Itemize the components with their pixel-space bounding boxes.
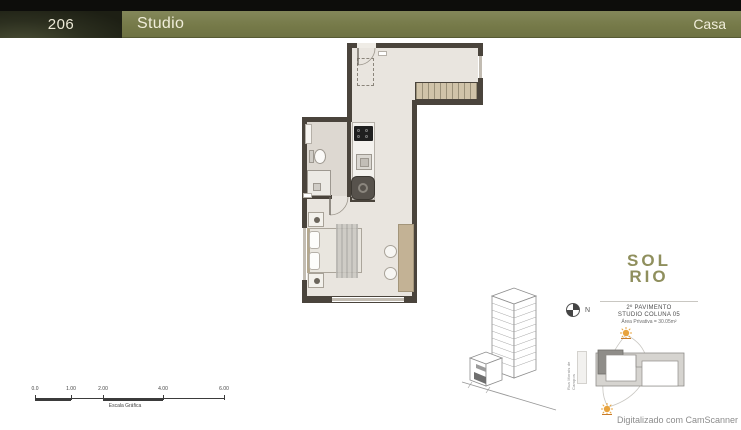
page-title: Studio (137, 11, 184, 38)
entry-door-opening (478, 56, 483, 78)
scale-tick-label: 6.00 (219, 386, 229, 392)
scale-tick (163, 395, 164, 400)
logo-line-1: SOL (600, 253, 698, 268)
door-gap-top (357, 43, 376, 48)
kitchen-sink (356, 154, 372, 170)
wall-under-stairs (412, 100, 483, 105)
scanned-floor-plan-page: 206 Studio Casa (0, 0, 741, 430)
sun-icon (620, 327, 632, 339)
scale-tick (71, 395, 72, 400)
scale-tick (224, 395, 225, 400)
scale-tick-label: 2.00 (98, 386, 108, 392)
logo-line-2: RIO (600, 268, 698, 285)
camscanner-watermark: Digitalizado com CamScanner (478, 415, 738, 425)
graphic-scale-bar: 0.0 1.00 2.00 4.00 6.00 Escala Gráfica (30, 386, 232, 412)
shower-drain (313, 183, 321, 191)
washing-machine (351, 176, 375, 200)
bed-runner-rug (336, 224, 358, 278)
chair (384, 267, 397, 280)
building-isometric (460, 272, 564, 414)
closet-dashed-outline (357, 58, 374, 86)
key-plan (590, 325, 702, 420)
north-label: N (585, 307, 590, 314)
unit-info: 2º PAVIMENTO STUDIO COLUNA 05 Área Priva… (594, 305, 704, 326)
scale-tick-label: 4.00 (158, 386, 168, 392)
logo-divider (600, 301, 698, 302)
dimension-tag (303, 193, 312, 198)
street-label: Rua Morais de Campos (566, 350, 576, 390)
window-bottom (332, 297, 404, 302)
wall-bathroom-top (302, 117, 352, 122)
stairs (415, 82, 478, 100)
scale-caption: Escala Gráfica (75, 403, 175, 409)
lamp-icon (314, 278, 320, 284)
scale-tick-label: 1.00 (66, 386, 76, 392)
toilet (314, 149, 326, 164)
sun-icon (601, 403, 613, 415)
header-right-label: Casa (693, 11, 726, 38)
street-block (577, 351, 587, 384)
scale-segment (103, 399, 163, 401)
nightstand-top (308, 212, 324, 227)
unit-info-column: STUDIO COLUNA 05 (594, 312, 704, 319)
unit-info-floor: 2º PAVIMENTO (594, 305, 704, 312)
unit-number-badge: 206 (0, 11, 122, 38)
scale-segment (35, 399, 71, 401)
pillow (309, 252, 320, 270)
north-arrow-icon (565, 302, 581, 318)
desk-sideboard (398, 224, 414, 292)
dimension-tag (378, 51, 387, 56)
development-logo: SOL RIO (600, 253, 698, 285)
lamp-icon (314, 217, 320, 223)
pillow (309, 231, 320, 249)
scale-tick-label: 0.0 (32, 386, 39, 392)
chair (384, 245, 397, 258)
nightstand-bottom (308, 273, 324, 288)
top-black-strip (0, 0, 741, 11)
wall-corridor-left (347, 43, 352, 122)
bathroom-vanity (305, 124, 312, 144)
cooktop (354, 126, 373, 141)
